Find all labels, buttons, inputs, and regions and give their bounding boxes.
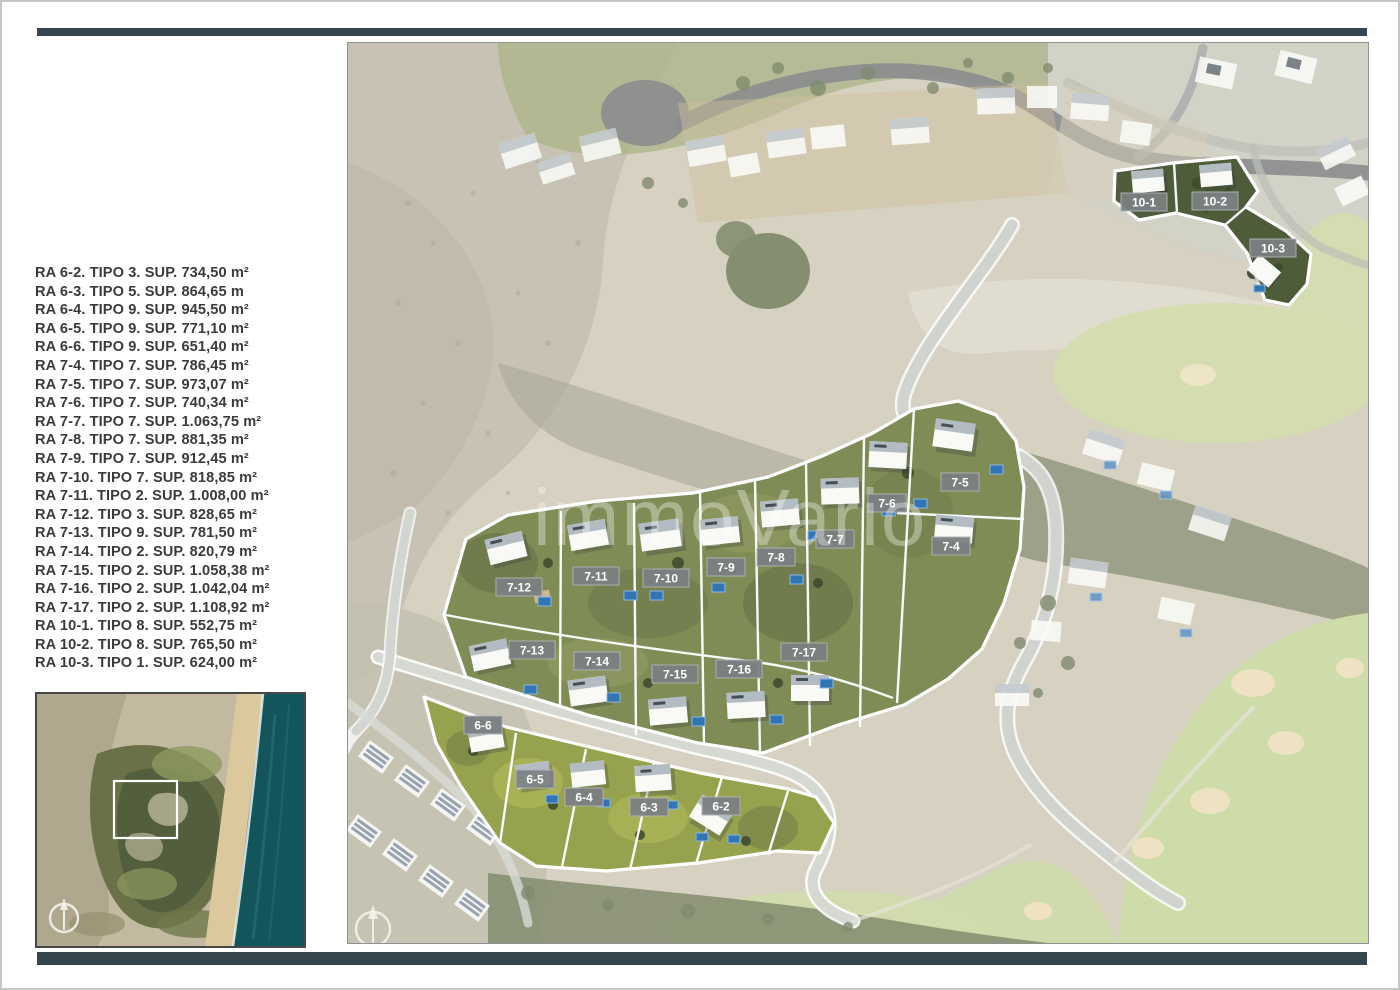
svg-text:7-12: 7-12 bbox=[507, 581, 531, 595]
plot-label: 6-5 bbox=[516, 770, 554, 788]
plot-list-item: RA 7-15. TIPO 2. SUP. 1.058,38 m² bbox=[35, 562, 325, 581]
plot-label: 6-4 bbox=[565, 788, 603, 806]
svg-text:10-2: 10-2 bbox=[1203, 195, 1227, 209]
plot-label: 10-1 bbox=[1121, 193, 1167, 211]
svg-text:7-5: 7-5 bbox=[951, 476, 969, 490]
plot-label: 7-17 bbox=[781, 643, 827, 661]
plot-list-item: RA 7-12. TIPO 3. SUP. 828,65 m² bbox=[35, 506, 325, 525]
plot-label: 7-10 bbox=[643, 569, 689, 587]
svg-text:7-10: 7-10 bbox=[654, 572, 678, 586]
plot-list-item: RA 10-2. TIPO 8. SUP. 765,50 m² bbox=[35, 636, 325, 655]
svg-text:6-3: 6-3 bbox=[640, 801, 658, 815]
plot-list-item: RA 7-14. TIPO 2. SUP. 820,79 m² bbox=[35, 543, 325, 562]
plot-label: 7-4 bbox=[932, 537, 970, 555]
plot-list-item: RA 7-9. TIPO 7. SUP. 912,45 m² bbox=[35, 450, 325, 469]
plot-list-item: RA 6-3. TIPO 5. SUP. 864,65 m bbox=[35, 283, 325, 302]
plot-label: 10-3 bbox=[1250, 239, 1296, 257]
plot-list-item: RA 6-2. TIPO 3. SUP. 734,50 m² bbox=[35, 264, 325, 283]
plot-label: 7-11 bbox=[573, 567, 619, 585]
svg-text:7-13: 7-13 bbox=[520, 644, 544, 658]
site-plan-map-frame: 10-110-210-37-57-67-77-87-97-107-117-127… bbox=[347, 42, 1369, 944]
plot-label: 6-2 bbox=[702, 797, 740, 815]
plot-list-item: RA 7-16. TIPO 2. SUP. 1.042,04 m² bbox=[35, 580, 325, 599]
plot-list-item: RA 6-5. TIPO 9. SUP. 771,10 m² bbox=[35, 320, 325, 339]
sheet: RA 6-2. TIPO 3. SUP. 734,50 m²RA 6-3. TI… bbox=[0, 0, 1400, 990]
location-inset-frame bbox=[35, 692, 306, 948]
bottom-accent-bar bbox=[37, 952, 1367, 965]
plot-list-item: RA 7-5. TIPO 7. SUP. 973,07 m² bbox=[35, 376, 325, 395]
svg-text:7-17: 7-17 bbox=[792, 646, 816, 660]
svg-text:7-15: 7-15 bbox=[663, 668, 687, 682]
plot-list-item: RA 7-11. TIPO 2. SUP. 1.008,00 m² bbox=[35, 487, 325, 506]
plot-list-item: RA 10-3. TIPO 1. SUP. 624,00 m² bbox=[35, 654, 325, 673]
svg-text:7-14: 7-14 bbox=[585, 655, 609, 669]
svg-text:6-6: 6-6 bbox=[474, 719, 492, 733]
plot-list-item: RA 7-7. TIPO 7. SUP. 1.063,75 m² bbox=[35, 413, 325, 432]
svg-text:6-2: 6-2 bbox=[712, 800, 730, 814]
plot-label: 7-13 bbox=[509, 641, 555, 659]
plot-label: 7-15 bbox=[652, 665, 698, 683]
svg-text:10-1: 10-1 bbox=[1132, 196, 1156, 210]
plot-list-item: RA 6-4. TIPO 9. SUP. 945,50 m² bbox=[35, 301, 325, 320]
plot-label: 7-12 bbox=[496, 578, 542, 596]
plot-label: 10-2 bbox=[1192, 192, 1238, 210]
plot-list-item: RA 6-6. TIPO 9. SUP. 651,40 m² bbox=[35, 338, 325, 357]
svg-text:6-4: 6-4 bbox=[575, 791, 593, 805]
plot-list-item: RA 7-6. TIPO 7. SUP. 740,34 m² bbox=[35, 394, 325, 413]
watermark: immoVario bbox=[533, 473, 927, 562]
plot-label: 7-5 bbox=[941, 473, 979, 491]
plot-list-item: RA 7-13. TIPO 9. SUP. 781,50 m² bbox=[35, 524, 325, 543]
svg-text:10-3: 10-3 bbox=[1261, 242, 1285, 256]
plot-label: 7-16 bbox=[716, 660, 762, 678]
site-plan-map: 10-110-210-37-57-67-77-87-97-107-117-127… bbox=[348, 43, 1368, 943]
plot-label: 7-14 bbox=[574, 652, 620, 670]
top-accent-bar bbox=[37, 28, 1367, 36]
svg-text:7-16: 7-16 bbox=[727, 663, 751, 677]
plot-list: RA 6-2. TIPO 3. SUP. 734,50 m²RA 6-3. TI… bbox=[35, 264, 325, 673]
plot-list-item: RA 10-1. TIPO 8. SUP. 552,75 m² bbox=[35, 617, 325, 636]
svg-text:7-9: 7-9 bbox=[717, 561, 735, 575]
plot-list-item: RA 7-10. TIPO 7. SUP. 818,85 m² bbox=[35, 469, 325, 488]
plot-list-item: RA 7-4. TIPO 7. SUP. 786,45 m² bbox=[35, 357, 325, 376]
svg-text:7-11: 7-11 bbox=[584, 570, 608, 584]
svg-text:7-4: 7-4 bbox=[942, 540, 960, 554]
svg-text:6-5: 6-5 bbox=[526, 773, 544, 787]
plot-list-item: RA 7-17. TIPO 2. SUP. 1.108,92 m² bbox=[35, 599, 325, 618]
plot-list-item: RA 7-8. TIPO 7. SUP. 881,35 m² bbox=[35, 431, 325, 450]
plot-label: 6-3 bbox=[630, 798, 668, 816]
plot-label: 6-6 bbox=[464, 716, 502, 734]
location-inset-map bbox=[37, 694, 304, 946]
